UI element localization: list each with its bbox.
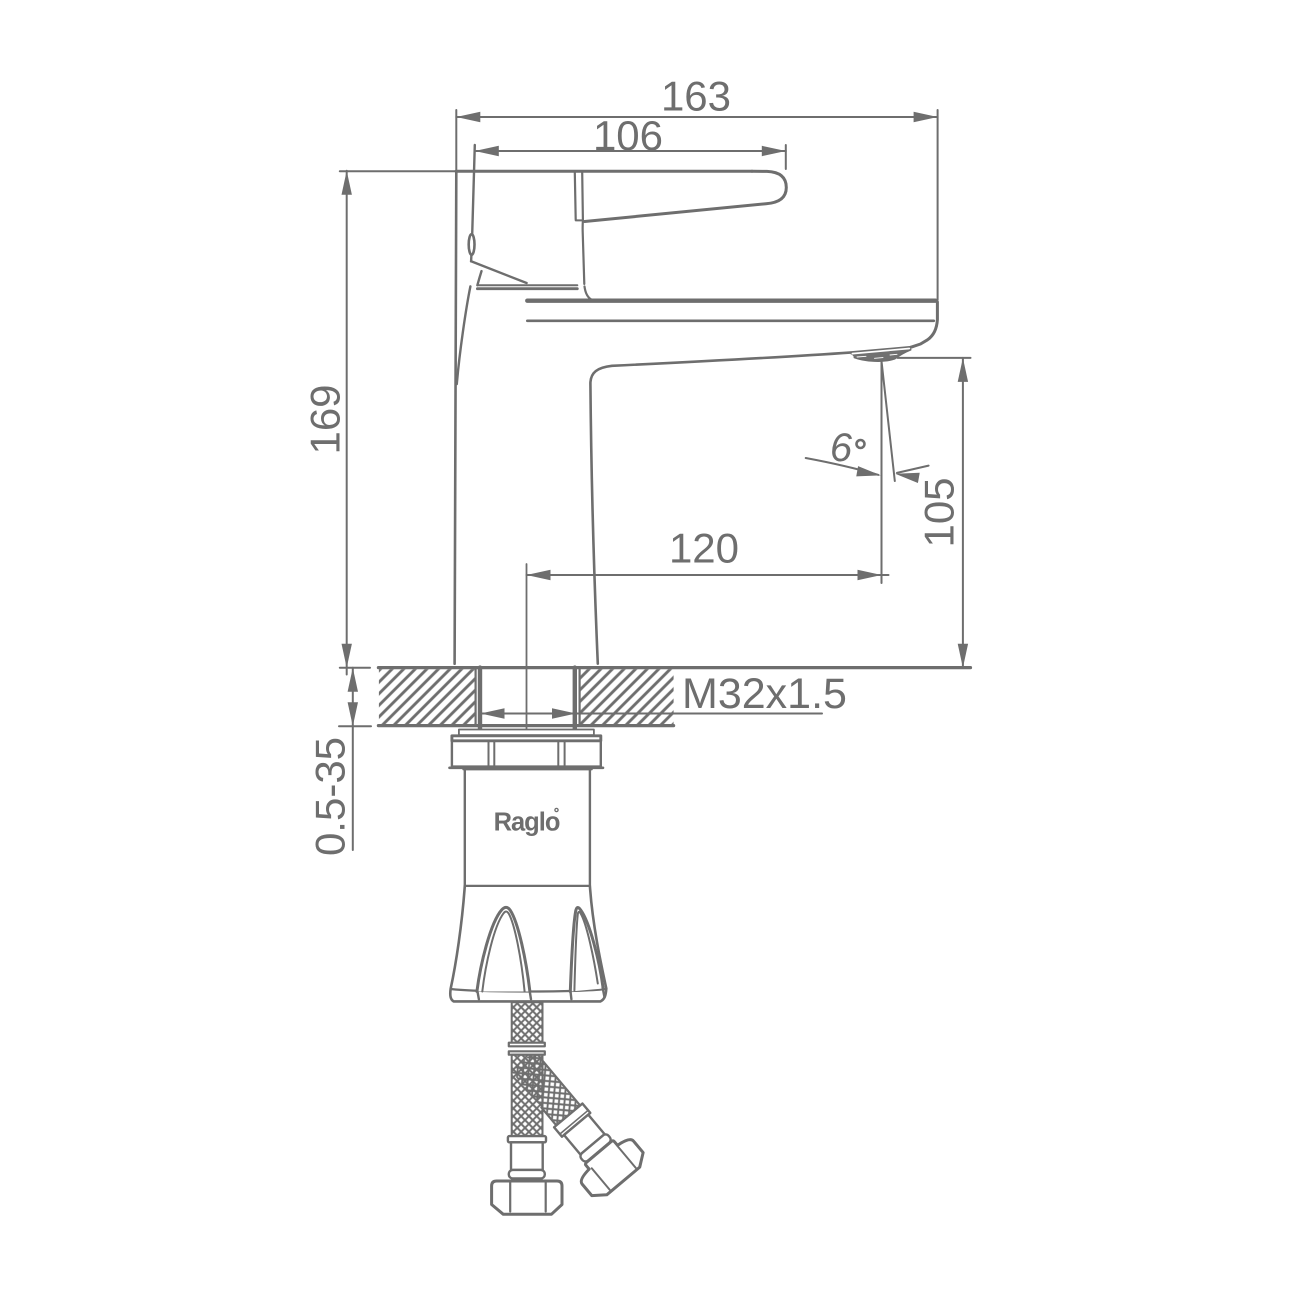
svg-text:6: 6 xyxy=(830,426,853,470)
svg-text:163: 163 xyxy=(661,73,731,120)
svg-text:Raglo: Raglo xyxy=(494,809,560,837)
svg-text:105: 105 xyxy=(916,477,963,547)
svg-text:120: 120 xyxy=(669,525,739,572)
svg-text:106: 106 xyxy=(593,112,663,159)
svg-text:M32x1.5: M32x1.5 xyxy=(682,670,847,718)
svg-text:0.5-35: 0.5-35 xyxy=(307,737,354,856)
svg-text:169: 169 xyxy=(302,384,349,454)
